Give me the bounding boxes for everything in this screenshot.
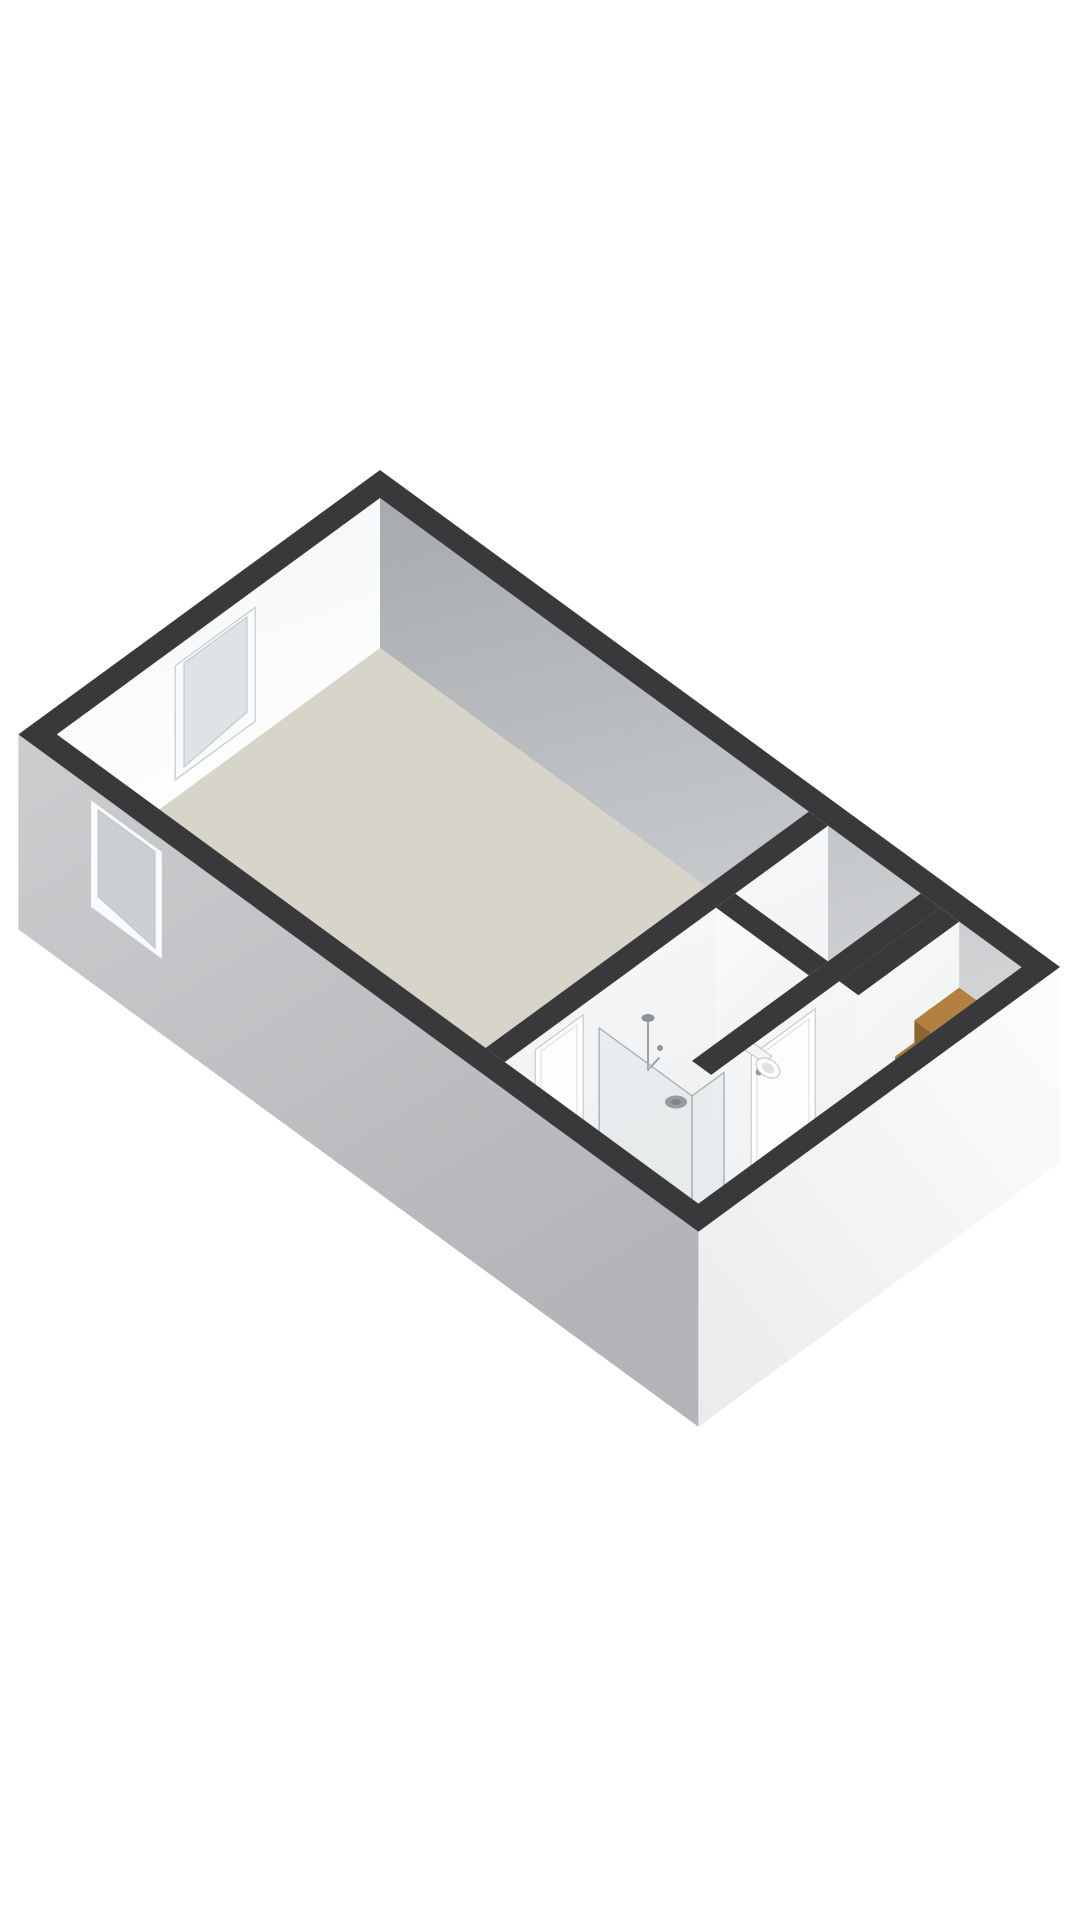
floorplan-canvas bbox=[0, 0, 1080, 1920]
shower-mixer-knob bbox=[657, 1045, 663, 1051]
shower-head bbox=[642, 1014, 655, 1022]
floorplan-3d-render bbox=[0, 0, 1080, 1920]
